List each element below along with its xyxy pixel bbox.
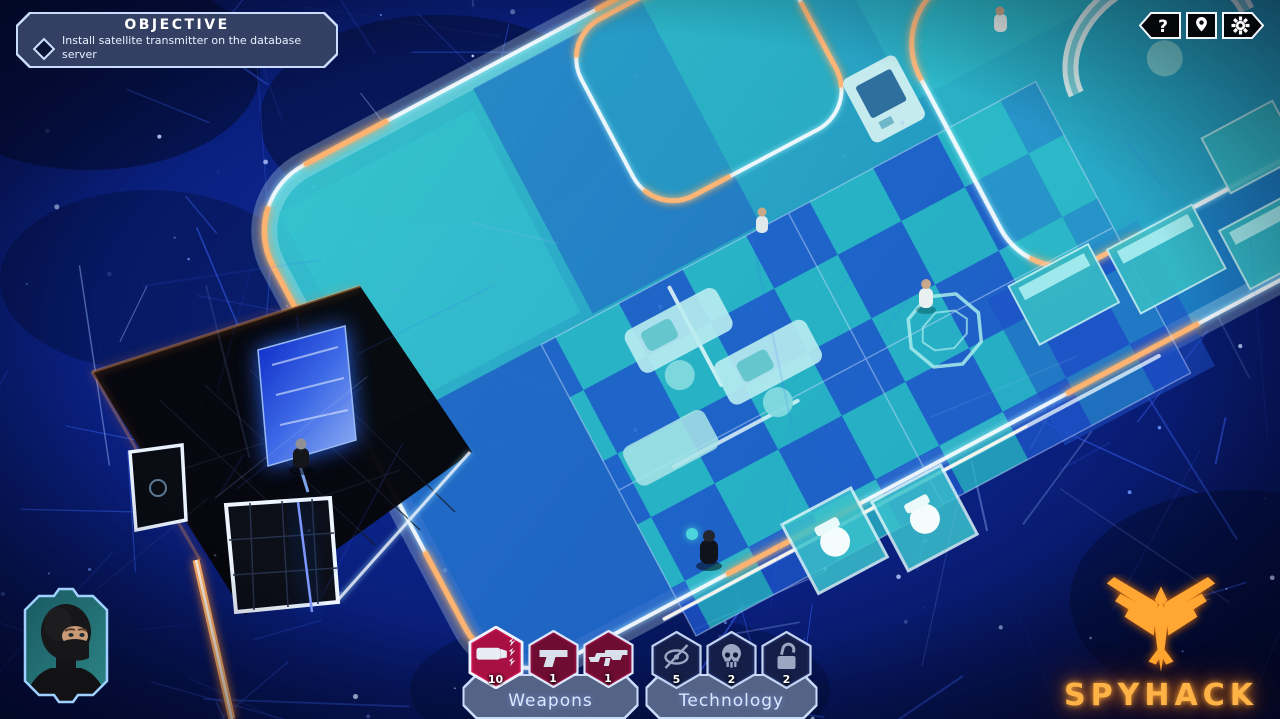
map-button[interactable] <box>1186 12 1217 39</box>
question-icon: ? <box>1158 17 1168 37</box>
game-window: OBJECTIVE Install satellite transmitter … <box>0 0 1280 719</box>
weapons-label: Weapons <box>463 674 639 719</box>
topbar: ? <box>1139 12 1264 39</box>
character-portrait[interactable] <box>13 584 119 708</box>
gear-icon <box>1232 17 1250 35</box>
objective-panel: OBJECTIVE Install satellite transmitter … <box>16 12 338 68</box>
eagle-emblem-icon <box>1086 574 1236 674</box>
settings-button[interactable] <box>1222 12 1264 39</box>
technology-label: Technology <box>646 674 818 719</box>
weapons-group: 10 1 1 <box>463 630 639 719</box>
help-button[interactable]: ? <box>1139 12 1181 39</box>
technology-panel: Technology <box>646 674 818 719</box>
portrait-image <box>13 584 119 708</box>
hotbar: 10 1 1 <box>463 630 818 719</box>
objective-title: OBJECTIVE <box>16 17 338 33</box>
game-logo: SPYHACK <box>1054 574 1268 713</box>
objective-diamond-icon <box>33 38 56 61</box>
logo-title: SPYHACK <box>1054 678 1268 713</box>
weapons-panel: Weapons <box>463 674 639 719</box>
technology-group: 5 2 <box>646 631 818 719</box>
objective-description: Install satellite transmitter on the dat… <box>62 34 328 63</box>
